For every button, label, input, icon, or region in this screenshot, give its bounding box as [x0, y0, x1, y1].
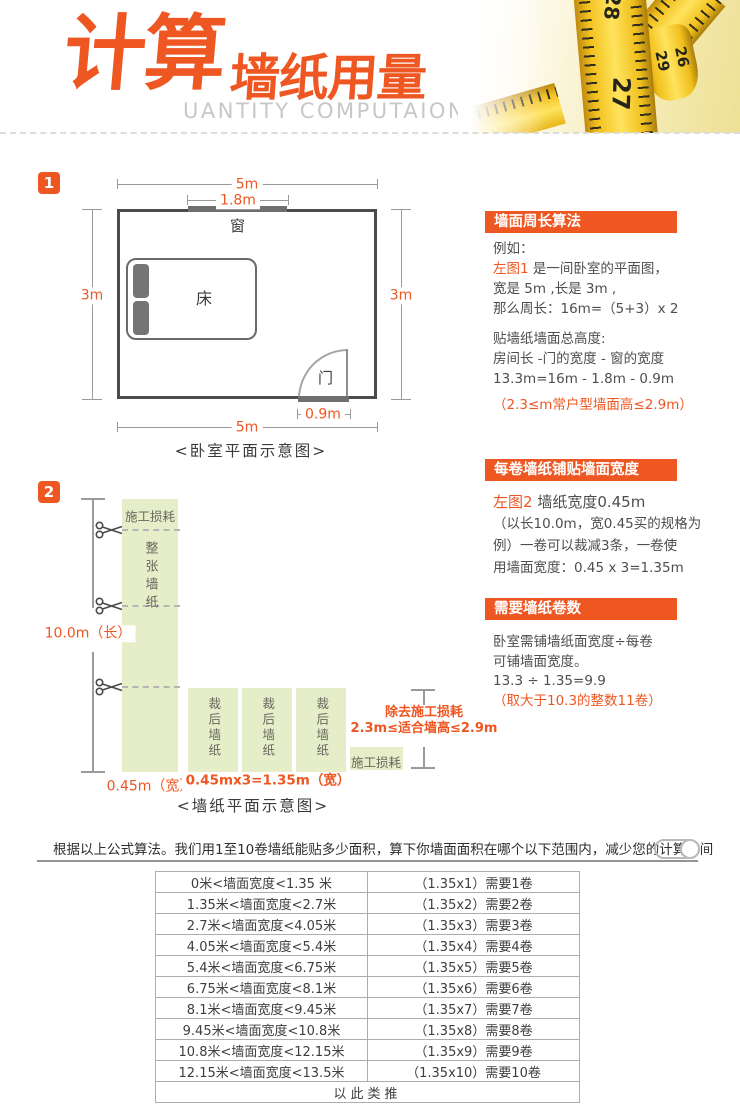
door-leaf [346, 349, 348, 399]
panel1-note: （2.3≤m常户型墙面高≤2.9m） [493, 395, 693, 415]
panel1-line: 那么周长：16m=（5+3）x 2 [493, 299, 693, 319]
panel1-line: 房间长 -门的宽度 - 窗的宽度 [493, 349, 693, 369]
table-cell: （1.35x9）需要9卷 [368, 1040, 580, 1061]
dim-label-top: 5m [232, 176, 263, 193]
table-cell: 0米<墙面宽度<1.35 米 [156, 872, 368, 893]
rolls-table-body: 0米<墙面宽度<1.35 米（1.35x1）需要1卷1.35米<墙面宽度<2.7… [156, 872, 580, 1082]
tape-number: 29 [652, 49, 671, 73]
pillow [133, 301, 149, 335]
dim-tick [377, 179, 378, 189]
dim-tick [411, 767, 435, 769]
section1-badge: 1 [38, 172, 60, 194]
panel1-title: 墙面周长算法 [485, 211, 677, 233]
dim-tick [81, 498, 105, 500]
table-row: 4.05米<墙面宽度<5.4米（1.35x4）需要4卷 [156, 935, 580, 956]
whole-roll-label: 整张墙纸 [144, 541, 157, 613]
panel2-line: 例）一卷可以裁减3条，一卷使 [493, 535, 701, 557]
table-cell: 8.1米<墙面宽度<9.45米 [156, 998, 368, 1019]
photo-fade [458, 0, 548, 133]
tape-segment-main: 28 27 [573, 0, 658, 133]
table-row: 2.7米<墙面宽度<4.05米（1.35x3）需要3卷 [156, 914, 580, 935]
table-row: 6.75米<墙面宽度<8.1米（1.35x6）需要6卷 [156, 977, 580, 998]
dim-tick [288, 195, 289, 205]
table-row: 5.4米<墙面宽度<6.75米（1.35x5）需要5卷 [156, 956, 580, 977]
dim-tick [350, 409, 351, 419]
rolls-table: 0米<墙面宽度<1.35 米（1.35x1）需要1卷1.35米<墙面宽度<2.7… [155, 871, 580, 1103]
panel1-line: 例如： [493, 239, 693, 259]
dim-tick [187, 195, 188, 205]
table-row: 10.8米<墙面宽度<12.15米（1.35x9）需要9卷 [156, 1040, 580, 1061]
scissors-icon [95, 521, 123, 539]
table-row: 12.15米<墙面宽度<13.5米（1.35x10）需要10卷 [156, 1061, 580, 1082]
dim-label-bottom: 5m [232, 419, 263, 436]
table-cell: 6.75米<墙面宽度<8.1米 [156, 977, 368, 998]
table-cell: 9.45米<墙面宽度<10.8米 [156, 1019, 368, 1040]
panel3-note: （取大于10.3的整数11卷） [493, 692, 662, 712]
dim-line-height [423, 689, 425, 705]
window-label: 窗 [230, 219, 245, 234]
cut-line [122, 686, 180, 688]
panel2-title: 每卷墙纸铺贴墙面宽度 [485, 459, 677, 481]
loss-box-label: 施工损耗 [351, 752, 401, 771]
bottom-intro-text: 根据以上公式算法。我们用1至10卷墙纸能贴多少面积，算下你墙面面积在哪个以下范围… [53, 838, 713, 858]
cut-strip-label: 裁后墙纸 [315, 697, 328, 759]
dim-tick [81, 771, 105, 773]
dim-tick [377, 422, 378, 432]
roll-loss-label: 施工损耗 [125, 506, 175, 525]
panel2-body: 左图2 墙纸宽度0.45m （以长10.0m，宽0.45买的规格为 例）一卷可以… [493, 491, 701, 579]
figure-ref: 左图2 [493, 493, 533, 511]
tape-number: 26 [672, 45, 691, 69]
panel3-line: 13.3 ÷ 1.35=9.9 [493, 672, 662, 692]
cut-strip-label: 裁后墙纸 [207, 697, 220, 759]
height-note-line2: 2.3m≤适合墙高≤2.9m [351, 721, 498, 737]
table-cell: （1.35x6）需要6卷 [368, 977, 580, 998]
panel3-title: 需要墙纸卷数 [485, 598, 677, 620]
dim-label-total-width: 0.45mx3=1.35m（宽） [182, 773, 355, 790]
table-row: 1.35米<墙面宽度<2.7米（1.35x2）需要2卷 [156, 893, 580, 914]
dim-label-length: 10.0m（长） [41, 625, 136, 642]
table-cell: 10.8米<墙面宽度<12.15米 [156, 1040, 368, 1061]
table-cell: （1.35x10）需要10卷 [368, 1061, 580, 1082]
cut-line [122, 529, 180, 531]
dim-line-length [92, 652, 94, 772]
panel1-body: 例如： 左图1 是一间卧室的平面图， 宽是 5m ,长是 3m , 那么周长：1… [493, 239, 693, 415]
table-footer-row: 以此类推 [156, 1082, 580, 1103]
tape-number: 27 [608, 77, 633, 111]
table-cell: （1.35x4）需要4卷 [368, 935, 580, 956]
panel3-line: 卧室需铺墙纸面宽度÷每卷 [493, 633, 662, 653]
panel3-body: 卧室需铺墙纸面宽度÷每卷 可铺墙面宽度。 13.3 ÷ 1.35=9.9 （取大… [493, 633, 662, 711]
cut-strip-label: 裁后墙纸 [261, 697, 274, 759]
panel2-line: 左图2 墙纸宽度0.45m [493, 491, 701, 513]
panel3-line: 可铺墙面宽度。 [493, 653, 662, 673]
door-label: 门 [318, 371, 333, 386]
pill-circle [680, 839, 700, 859]
table-cell: （1.35x7）需要7卷 [368, 998, 580, 1019]
dim-tick [117, 422, 118, 432]
table-cell: 5.4米<墙面宽度<6.75米 [156, 956, 368, 977]
bed-label: 床 [196, 291, 212, 307]
page-title-english: UANTITY COMPUTAION [183, 101, 466, 122]
door-threshold-bar [298, 396, 349, 402]
table-row: 8.1米<墙面宽度<9.45米（1.35x7）需要7卷 [156, 998, 580, 1019]
dim-line-length [92, 499, 94, 608]
tape-number: 28 [601, 0, 624, 21]
table-cell: 1.35米<墙面宽度<2.7米 [156, 893, 368, 914]
dim-label-window: 1.8m [216, 192, 260, 209]
dim-tick [297, 409, 298, 419]
table-cell: （1.35x8）需要8卷 [368, 1019, 580, 1040]
dim-tick [391, 399, 411, 400]
dim-tick [391, 209, 411, 210]
dim-line-height [423, 747, 425, 768]
panel1-line: 左图1 是一间卧室的平面图， [493, 259, 693, 279]
table-cell: （1.35x1）需要1卷 [368, 872, 580, 893]
panel1-line: 宽是 5m ,长是 3m , [493, 279, 693, 299]
section2-caption: <墙纸平面示意图> [177, 794, 329, 816]
section2-badge: 2 [38, 481, 60, 503]
panel1-line: 13.3m=16m - 1.8m - 0.9m [493, 369, 693, 389]
table-row: 0米<墙面宽度<1.35 米（1.35x1）需要1卷 [156, 872, 580, 893]
scissors-icon [95, 678, 123, 696]
page: 31 29 26 28 27 计算 墙纸用量 UANTITY COMPUTAIO… [0, 0, 740, 1119]
dim-tick [117, 179, 118, 189]
table-cell: （1.35x3）需要3卷 [368, 914, 580, 935]
panel2-line: 用墙面宽度：0.45 x 3=1.35m [493, 557, 701, 579]
pillow [133, 264, 149, 298]
page-title-sub: 墙纸用量 [228, 53, 427, 103]
table-cell: （1.35x5）需要5卷 [368, 956, 580, 977]
dim-tick [82, 399, 102, 400]
figure-ref: 左图1 [493, 261, 529, 277]
dim-label-right: 3m [386, 287, 417, 304]
table-cell: 2.7米<墙面宽度<4.05米 [156, 914, 368, 935]
pill-decoration [654, 839, 700, 859]
dim-label-left: 3m [77, 287, 108, 304]
table-cell: 4.05米<墙面宽度<5.4米 [156, 935, 368, 956]
section1-caption: <卧室平面示意图> [175, 439, 327, 461]
dim-label-door: 0.9m [301, 406, 345, 423]
scissors-icon [95, 597, 123, 615]
panel2-line: （以长10.0m，宽0.45买的规格为 [493, 513, 701, 535]
table-cell: （1.35x2）需要2卷 [368, 893, 580, 914]
bottom-divider [37, 860, 698, 862]
table-cell: 12.15米<墙面宽度<13.5米 [156, 1061, 368, 1082]
table-row: 9.45米<墙面宽度<10.8米（1.35x8）需要8卷 [156, 1019, 580, 1040]
panel1-line: 贴墙纸墙面总高度: [493, 329, 693, 349]
dim-tick [82, 209, 102, 210]
table-footer-cell: 以此类推 [156, 1082, 580, 1103]
height-note-line1: 除去施工损耗 [385, 705, 463, 721]
page-title-main: 计算 [60, 14, 227, 96]
header-divider [0, 132, 740, 134]
